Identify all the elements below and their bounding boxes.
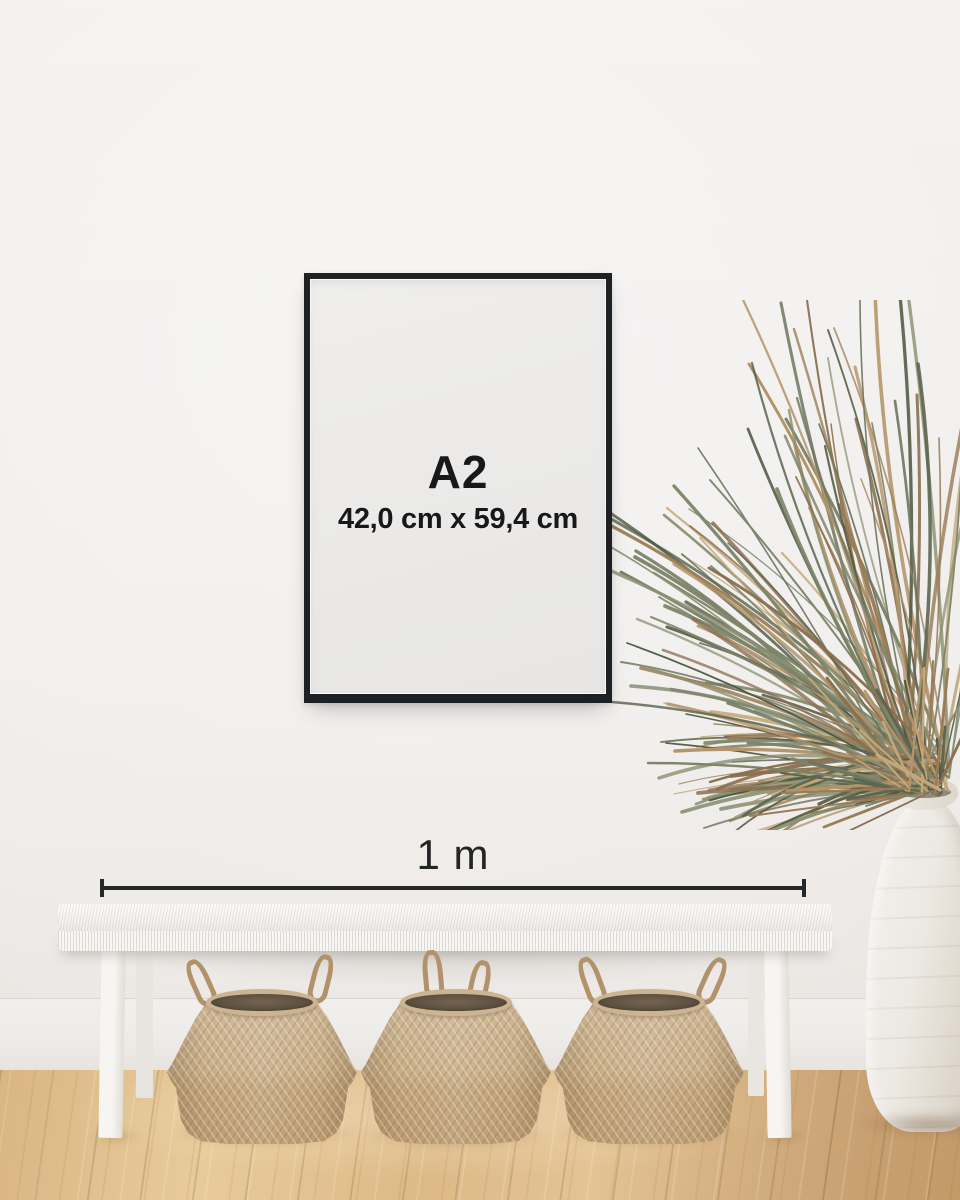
basket-body <box>554 1002 744 1144</box>
basket-body <box>167 1002 357 1144</box>
vase <box>866 798 960 1132</box>
basket-rim <box>593 989 705 1016</box>
basket-rim <box>206 989 318 1016</box>
poster-frame: A2 42,0 cm x 59,4 cm <box>304 273 612 703</box>
basket-left <box>167 954 357 1144</box>
measurement-label: 1 m <box>100 834 806 876</box>
poster-dimensions-label: 42,0 cm x 59,4 cm <box>310 505 606 534</box>
size-guide-scene: A2 42,0 cm x 59,4 cm 1 m <box>0 0 960 1200</box>
measurement-line <box>100 886 806 890</box>
poster-paper: A2 42,0 cm x 59,4 cm <box>310 279 606 694</box>
bench-leg-rear-right <box>748 948 764 1096</box>
basket-right <box>554 954 744 1144</box>
bench-leg-front-right <box>764 948 791 1138</box>
bench-seat-front <box>58 931 832 951</box>
bench-leg-front-left <box>98 948 125 1138</box>
bench-leg-rear-left <box>136 948 153 1098</box>
basket-body <box>361 1002 551 1144</box>
poster-size-label: A2 <box>310 449 606 495</box>
basket-rim <box>400 989 512 1016</box>
bench-seat-top <box>58 904 832 931</box>
basket-middle <box>361 954 551 1144</box>
